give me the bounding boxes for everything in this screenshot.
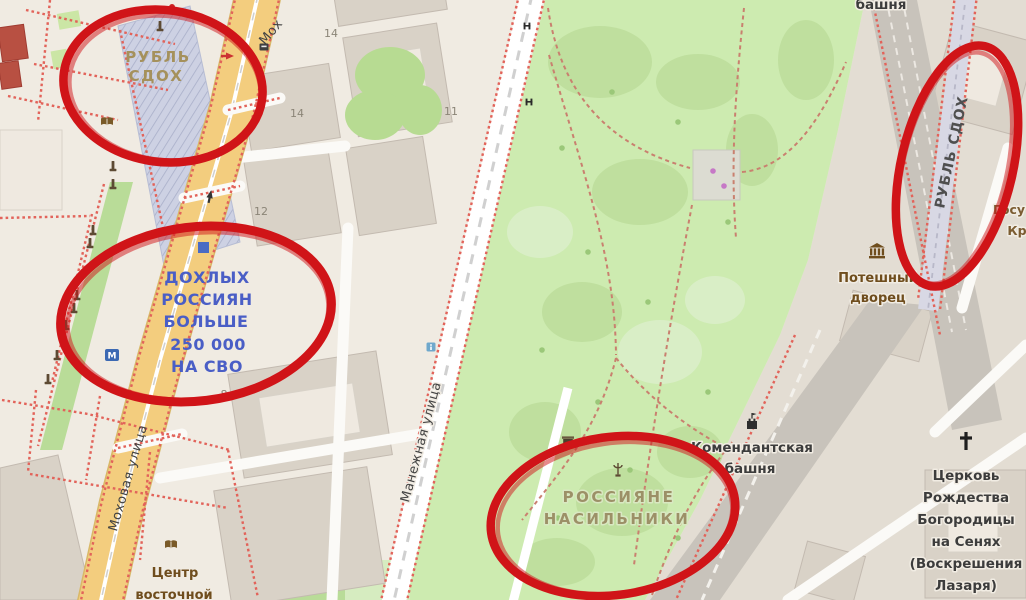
house-number: 12	[254, 205, 268, 218]
artwork-dot	[721, 183, 727, 189]
place-label-church: Рождества	[923, 490, 1009, 506]
svg-text:РОССИЯНЕ: РОССИЯНЕ	[563, 488, 676, 506]
artwork-dot	[710, 168, 716, 174]
place-label-church: Церковь	[933, 468, 1000, 484]
place-label-poteshny: Потешный	[838, 271, 918, 286]
svg-text:250 000: 250 000	[170, 335, 246, 354]
place-label-tower-top: башня	[856, 0, 907, 13]
info-icon	[427, 343, 436, 352]
place-label-east-center: восточной	[135, 588, 212, 600]
place-label-partial: Кр	[1007, 223, 1026, 238]
house-number: 14	[324, 27, 338, 40]
metro-icon	[105, 349, 119, 362]
place-label-church: (Воскрешения	[910, 556, 1023, 572]
house-number: 14	[290, 107, 304, 120]
place-label-church: на Сенях	[932, 534, 1001, 550]
place-label-komendant-tower: башня	[725, 461, 776, 477]
library-icon	[101, 117, 113, 125]
map-canvas[interactable]: М	[0, 0, 1026, 600]
red-building	[0, 61, 22, 90]
place-label-east-center: Центр	[152, 566, 199, 581]
place-label-komendant-tower: Комендантская	[691, 440, 813, 456]
svg-text:НА СВО: НА СВО	[171, 357, 243, 376]
svg-text:СДОХ: СДОХ	[129, 67, 184, 85]
bus-stop-square-icon	[198, 242, 209, 253]
vandal-label-ruble-top: РУБЛЬ СДОХ	[125, 48, 190, 85]
library-icon	[165, 540, 177, 548]
svg-text:РУБЛЬ: РУБЛЬ	[125, 48, 190, 66]
svg-text:РОССИЯН: РОССИЯН	[161, 290, 252, 309]
svg-text:БОЛЬШЕ: БОЛЬШЕ	[164, 312, 249, 331]
red-building	[0, 24, 28, 61]
svg-text:НАСИЛЬНИКИ: НАСИЛЬНИКИ	[544, 510, 691, 528]
house-number: 11	[444, 105, 458, 118]
map-screenshot: М	[0, 0, 1026, 600]
place-label-church: Лазаря)	[935, 578, 997, 594]
svg-text:ДОХЛЫХ: ДОХЛЫХ	[164, 268, 250, 287]
vandal-label-dead-russians: ДОХЛЫХ РОССИЯН БОЛЬШЕ 250 000 НА СВО	[161, 268, 252, 376]
place-label-poteshny: дворец	[850, 291, 906, 306]
place-label-church: Богородицы	[917, 512, 1014, 528]
